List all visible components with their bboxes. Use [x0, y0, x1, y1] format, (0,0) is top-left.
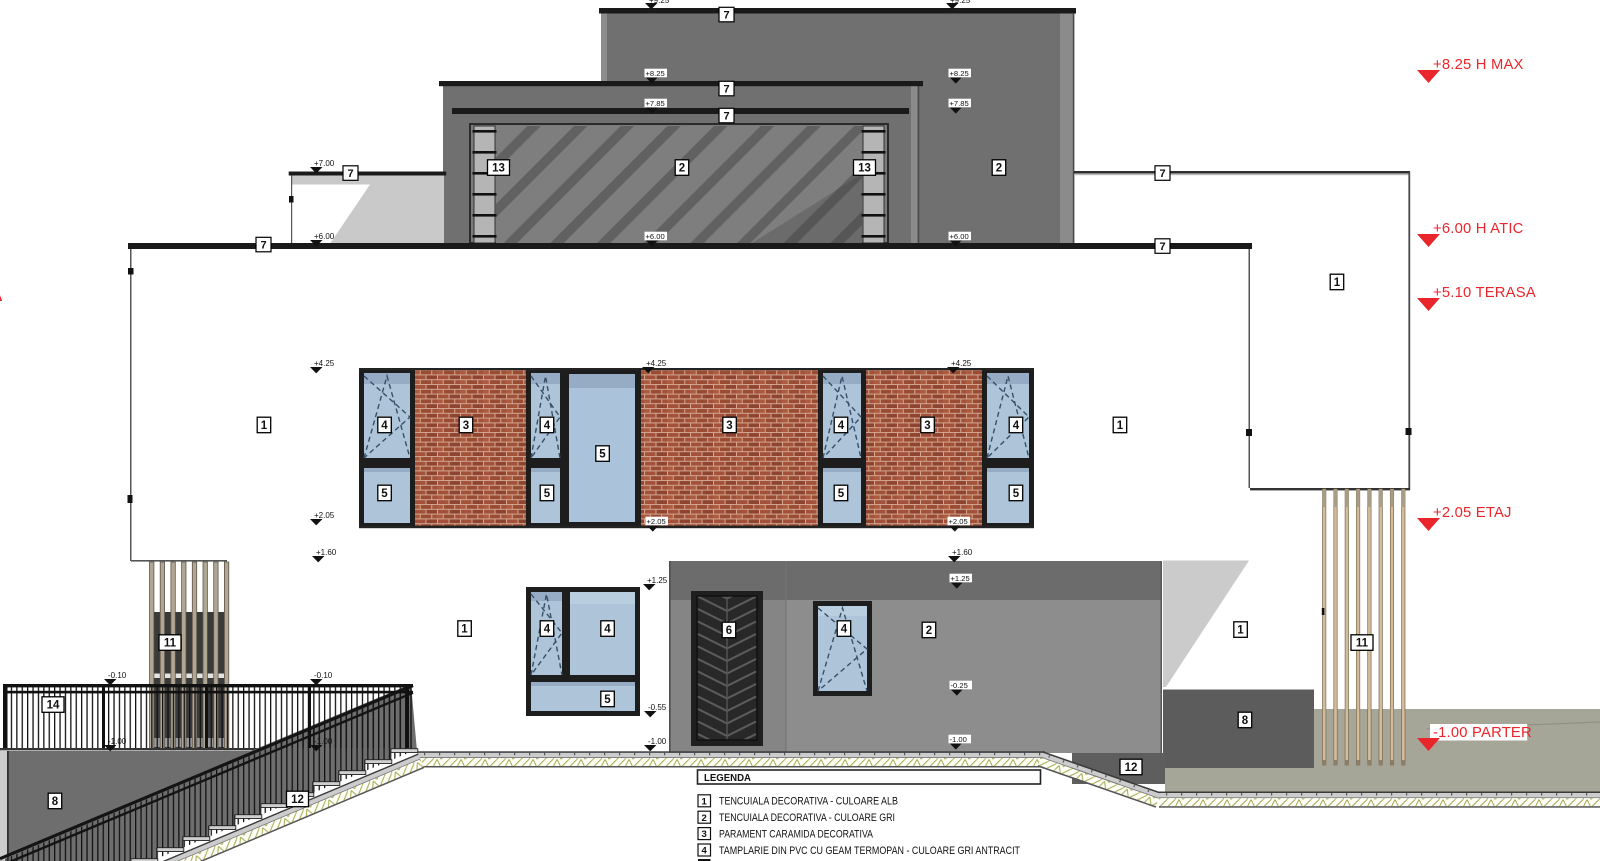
svg-text:LEGENDA: LEGENDA: [704, 772, 751, 784]
svg-text:3: 3: [702, 829, 707, 840]
svg-text:+8.25: +8.25: [950, 69, 969, 78]
svg-text:+4.25: +4.25: [314, 359, 335, 368]
svg-text:1: 1: [261, 420, 268, 432]
svg-text:7: 7: [1159, 241, 1165, 253]
svg-text:-0.10: -0.10: [108, 671, 127, 680]
svg-text:+1.25: +1.25: [951, 574, 970, 583]
svg-text:1: 1: [1334, 277, 1341, 289]
svg-text:11: 11: [1356, 638, 1369, 650]
svg-text:12: 12: [291, 794, 304, 806]
svg-text:+2.05 ETAJ: +2.05 ETAJ: [1433, 505, 1512, 521]
svg-text:8: 8: [52, 796, 59, 808]
svg-text:13: 13: [858, 163, 871, 175]
svg-text:1: 1: [461, 624, 468, 636]
svg-text:-0.25: -0.25: [951, 681, 968, 690]
svg-text:A: A: [0, 288, 3, 305]
svg-text:3: 3: [726, 420, 732, 432]
svg-text:+8.25: +8.25: [646, 69, 665, 78]
svg-text:13: 13: [492, 163, 505, 175]
svg-text:+6.00 H ATIC: +6.00 H ATIC: [1433, 221, 1524, 237]
svg-text:4: 4: [381, 420, 388, 432]
svg-text:+6.00: +6.00: [646, 232, 665, 241]
svg-text:5: 5: [599, 449, 606, 461]
svg-text:8: 8: [1242, 715, 1249, 727]
svg-text:PARAMENT CARAMIDA DECORATIVA: PARAMENT CARAMIDA DECORATIVA: [719, 828, 874, 840]
svg-text:5: 5: [1013, 488, 1020, 500]
svg-text:12: 12: [1125, 762, 1138, 774]
svg-text:-0.10: -0.10: [314, 671, 333, 680]
svg-text:+7.85: +7.85: [950, 99, 969, 108]
svg-text:+2.05: +2.05: [949, 517, 968, 526]
svg-text:7: 7: [723, 111, 729, 123]
svg-text:+2.05: +2.05: [647, 517, 666, 526]
svg-text:7: 7: [723, 84, 729, 96]
svg-text:4: 4: [841, 624, 848, 636]
svg-text:2: 2: [702, 813, 707, 824]
svg-text:+1.25: +1.25: [647, 576, 668, 585]
svg-text:+5.10 TERASA: +5.10 TERASA: [1433, 285, 1536, 301]
svg-text:7: 7: [723, 10, 729, 22]
svg-text:-1.00: -1.00: [950, 735, 967, 744]
svg-text:-1.00 PARTER: -1.00 PARTER: [1433, 725, 1532, 741]
svg-text:4: 4: [604, 624, 611, 636]
svg-text:3: 3: [463, 420, 469, 432]
svg-text:TENCUIALA DECORATIVA - CULOARE: TENCUIALA DECORATIVA - CULOARE ALB: [719, 796, 898, 808]
svg-text:-1.00: -1.00: [108, 737, 127, 746]
svg-text:7: 7: [347, 168, 353, 180]
svg-text:5: 5: [381, 488, 388, 500]
svg-text:+8.25 H MAX: +8.25 H MAX: [1433, 57, 1524, 73]
svg-text:TENCUIALA DECORATIVA - CULOARE: TENCUIALA DECORATIVA - CULOARE GRI: [719, 812, 895, 824]
svg-text:4: 4: [544, 624, 551, 636]
svg-text:2: 2: [926, 625, 932, 637]
svg-text:11: 11: [164, 638, 177, 650]
svg-text:2: 2: [996, 163, 1002, 175]
svg-text:1: 1: [1117, 420, 1124, 432]
svg-text:2: 2: [679, 163, 685, 175]
svg-text:+4.25: +4.25: [951, 359, 972, 368]
svg-text:5: 5: [544, 488, 551, 500]
svg-text:+1.60: +1.60: [316, 548, 337, 557]
svg-text:-0.55: -0.55: [648, 703, 667, 712]
svg-text:7: 7: [260, 240, 266, 252]
svg-text:+7.85: +7.85: [646, 99, 665, 108]
svg-text:-1.00: -1.00: [314, 737, 333, 746]
svg-text:5: 5: [838, 488, 845, 500]
svg-text:+6.00: +6.00: [950, 232, 969, 241]
svg-text:+4.25: +4.25: [646, 359, 667, 368]
svg-text:-1.00: -1.00: [648, 737, 667, 746]
svg-text:4: 4: [838, 420, 845, 432]
svg-text:14: 14: [47, 700, 60, 712]
svg-text:TAMPLARIE DIN PVC CU GEAM TERM: TAMPLARIE DIN PVC CU GEAM TERMOPAN - CUL…: [719, 845, 1020, 857]
svg-text:+6.00: +6.00: [314, 232, 335, 241]
svg-text:7: 7: [1159, 168, 1165, 180]
svg-text:+2.05: +2.05: [314, 511, 335, 520]
svg-text:4: 4: [544, 420, 551, 432]
svg-text:5: 5: [604, 694, 611, 706]
svg-text:6: 6: [726, 625, 732, 637]
svg-text:+1.60: +1.60: [952, 548, 973, 557]
svg-text:1: 1: [702, 796, 708, 807]
svg-text:+7.00: +7.00: [314, 159, 335, 168]
svg-text:4: 4: [702, 846, 708, 857]
svg-text:3: 3: [924, 420, 930, 432]
svg-text:1: 1: [1237, 625, 1244, 637]
svg-text:4: 4: [1013, 420, 1020, 432]
